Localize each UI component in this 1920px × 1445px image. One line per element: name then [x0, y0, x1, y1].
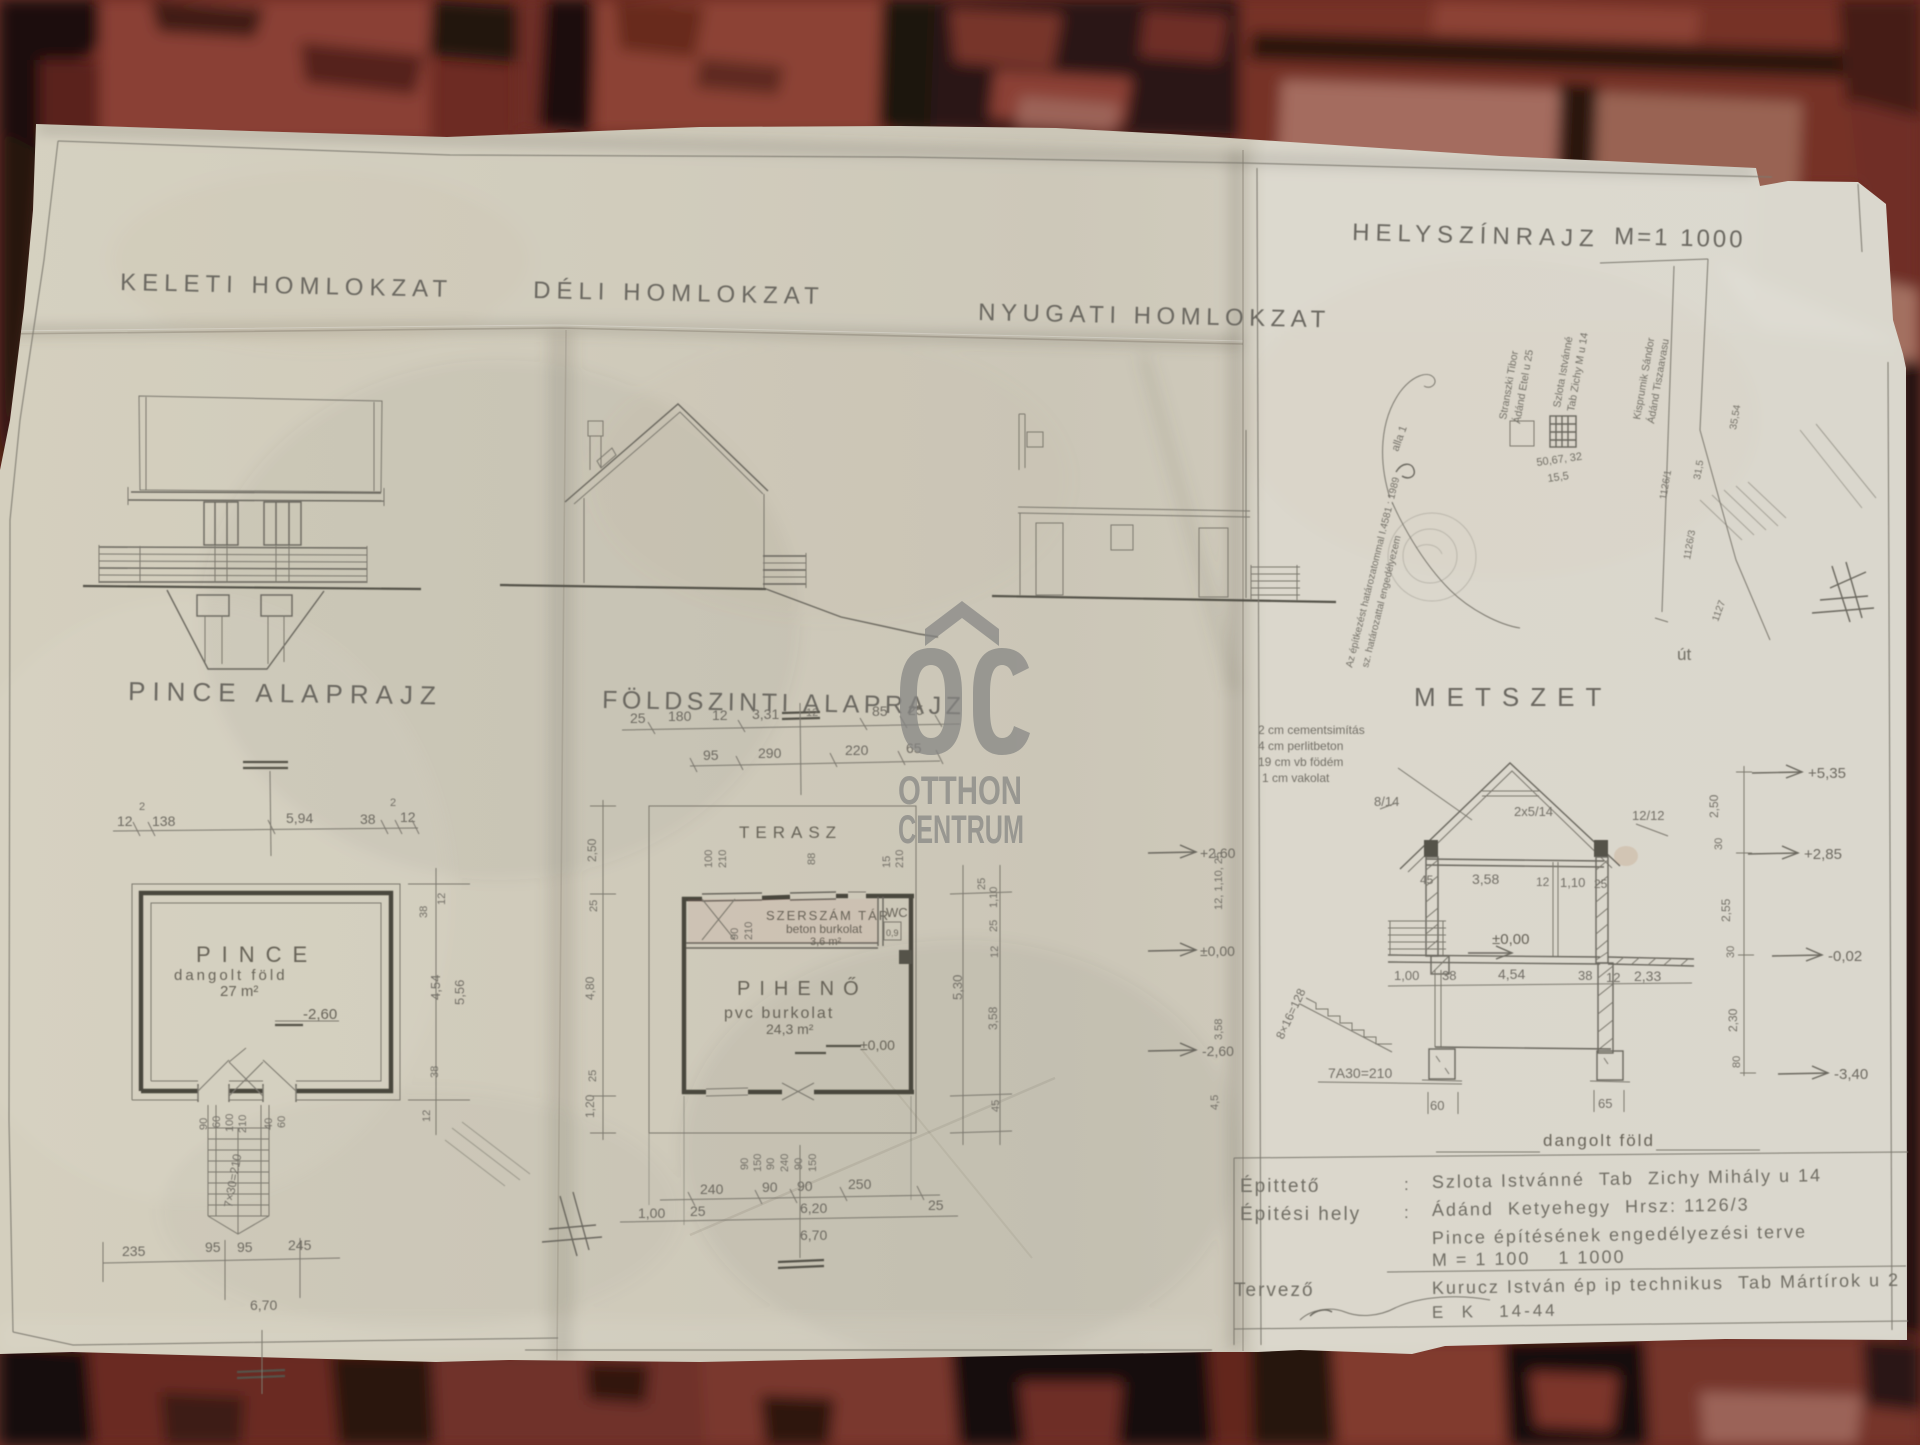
svg-text:+2,85: +2,85 — [1804, 846, 1842, 863]
svg-text:2,30: 2,30 — [1726, 1008, 1740, 1032]
svg-text:12: 12 — [989, 946, 1001, 958]
svg-text:4 cm perlitbeton: 4 cm perlitbeton — [1258, 739, 1343, 753]
svg-text:38: 38 — [429, 1066, 441, 1078]
svg-text:25: 25 — [690, 1203, 706, 1219]
svg-text:95: 95 — [205, 1239, 221, 1255]
svg-text:150: 150 — [807, 1154, 819, 1172]
svg-text:2: 2 — [139, 801, 145, 813]
svg-text:25: 25 — [588, 900, 600, 912]
svg-text:240: 240 — [779, 1154, 791, 1172]
svg-text:+5,35: +5,35 — [1808, 765, 1846, 782]
svg-text:OTTHON: OTTHON — [898, 769, 1022, 813]
svg-text:12: 12 — [1536, 875, 1550, 889]
svg-text:25: 25 — [988, 920, 1000, 932]
svg-text:25: 25 — [1594, 877, 1608, 891]
svg-text:60: 60 — [276, 1116, 288, 1128]
svg-text:5,30: 5,30 — [950, 975, 965, 1000]
svg-text:4,54: 4,54 — [428, 975, 443, 1000]
svg-text:12: 12 — [712, 707, 728, 723]
svg-text:19 cm vb födém: 19 cm vb födém — [1258, 755, 1343, 769]
svg-text:2x5/14: 2x5/14 — [1514, 804, 1553, 819]
svg-text:1,00: 1,00 — [638, 1205, 665, 1221]
svg-text:12/12: 12/12 — [1632, 808, 1665, 823]
svg-text:2,50: 2,50 — [1707, 794, 1721, 818]
svg-text:6,70: 6,70 — [250, 1297, 277, 1313]
svg-text:85: 85 — [872, 703, 888, 719]
svg-text:27 m²: 27 m² — [220, 983, 258, 1000]
svg-text:SZERSZÁM TÁR: SZERSZÁM TÁR — [766, 908, 890, 923]
svg-text:PINCE: PINCE — [196, 942, 318, 967]
svg-text:PIHENŐ: PIHENŐ — [737, 977, 868, 1000]
svg-text:2,50: 2,50 — [585, 838, 599, 862]
svg-text::: : — [1404, 1175, 1409, 1194]
svg-text:90: 90 — [729, 928, 741, 940]
svg-text:12: 12 — [806, 707, 818, 719]
svg-text:CENTRUM: CENTRUM — [898, 808, 1024, 852]
svg-text:38: 38 — [1442, 968, 1456, 983]
svg-text:180: 180 — [668, 708, 692, 724]
svg-text:80: 80 — [1731, 1056, 1743, 1068]
svg-text:METSZET: METSZET — [1414, 682, 1612, 712]
svg-text:210: 210 — [717, 850, 729, 868]
svg-text:6,70: 6,70 — [800, 1227, 827, 1243]
svg-text:E K 14-44: E K 14-44 — [1432, 1301, 1558, 1322]
svg-text:25: 25 — [928, 1197, 944, 1213]
svg-text:45: 45 — [1420, 873, 1434, 887]
svg-text:-3,40: -3,40 — [1834, 1066, 1868, 1083]
svg-text:25: 25 — [630, 710, 646, 726]
svg-text:210: 210 — [743, 922, 755, 940]
svg-text:24,3 m²: 24,3 m² — [766, 1021, 814, 1037]
svg-text:60: 60 — [211, 1116, 223, 1128]
svg-text:-2,60: -2,60 — [1202, 1043, 1234, 1059]
svg-text:40: 40 — [263, 1118, 275, 1130]
svg-text:7A30=210: 7A30=210 — [1328, 1065, 1392, 1081]
svg-text:2: 2 — [390, 797, 396, 809]
svg-text:Épitési hely: Épitési hely — [1240, 1204, 1361, 1225]
svg-text:95: 95 — [703, 747, 719, 763]
svg-text:220: 220 — [845, 742, 869, 758]
svg-text:Tervező: Tervező — [1234, 1280, 1315, 1301]
svg-text:90: 90 — [739, 1158, 751, 1170]
svg-text:M = 1 100 1 1000: M = 1 100 1 1000 — [1432, 1247, 1626, 1270]
svg-text::: : — [1404, 1203, 1409, 1222]
svg-text:±0,00: ±0,00 — [860, 1037, 895, 1053]
svg-text:240: 240 — [700, 1181, 724, 1197]
svg-text:dangolt föld: dangolt föld — [174, 967, 288, 984]
svg-text:4,54: 4,54 — [1498, 966, 1525, 982]
svg-text:5,56: 5,56 — [452, 980, 467, 1005]
svg-text:1,00: 1,00 — [1394, 968, 1419, 983]
svg-text:38: 38 — [418, 906, 430, 918]
svg-text:2,33: 2,33 — [1634, 968, 1661, 984]
svg-text:1 cm vakolat: 1 cm vakolat — [1262, 771, 1330, 785]
svg-text:90: 90 — [762, 1179, 778, 1195]
svg-text:5,94: 5,94 — [286, 810, 313, 826]
svg-text:290: 290 — [758, 745, 782, 761]
svg-text:90: 90 — [765, 1158, 777, 1170]
svg-text:25: 25 — [587, 1070, 599, 1082]
svg-text:90: 90 — [198, 1118, 210, 1130]
svg-text:1,10: 1,10 — [1560, 875, 1585, 890]
svg-text:30: 30 — [1713, 838, 1725, 850]
svg-text:TERASZ: TERASZ — [739, 823, 842, 842]
svg-text:3,58: 3,58 — [1213, 1019, 1225, 1040]
svg-text:pvc burkolat: pvc burkolat — [724, 1005, 834, 1022]
svg-text:210: 210 — [894, 850, 906, 868]
svg-text:65: 65 — [1598, 1096, 1612, 1111]
svg-text:88: 88 — [806, 853, 818, 865]
svg-text:30: 30 — [1725, 946, 1737, 958]
svg-text:2 cm cementsimítás: 2 cm cementsimítás — [1258, 723, 1365, 737]
svg-text:12: 12 — [436, 893, 448, 905]
svg-text:150: 150 — [752, 1154, 764, 1172]
svg-text:90: 90 — [793, 1158, 805, 1170]
svg-text:3,31: 3,31 — [752, 706, 779, 722]
svg-text:1,10: 1,10 — [988, 887, 1000, 908]
svg-text:út: út — [1677, 645, 1691, 664]
svg-text:138: 138 — [152, 813, 176, 829]
svg-text:3,6 m²: 3,6 m² — [810, 936, 842, 948]
svg-text:±0,00: ±0,00 — [1492, 931, 1529, 948]
svg-text:25: 25 — [976, 878, 988, 890]
svg-text:245: 245 — [288, 1237, 312, 1253]
svg-text:1,20: 1,20 — [583, 1094, 597, 1118]
svg-text:210: 210 — [237, 1115, 249, 1133]
svg-text:45: 45 — [990, 1100, 1002, 1112]
svg-text:100: 100 — [224, 1114, 236, 1132]
svg-text:dangolt föld: dangolt föld — [1543, 1131, 1655, 1150]
svg-text:100: 100 — [703, 850, 715, 868]
svg-text:-0,02: -0,02 — [1828, 948, 1862, 965]
svg-text:12: 12 — [421, 1110, 433, 1122]
svg-text:4,5: 4,5 — [1209, 1095, 1221, 1110]
svg-text:4,80: 4,80 — [583, 976, 597, 1000]
svg-text:beton burkolat: beton burkolat — [786, 922, 863, 936]
svg-text:12: 12 — [117, 813, 133, 829]
svg-text:12, 1,10, 25: 12, 1,10, 25 — [1213, 852, 1225, 910]
svg-text:235: 235 — [122, 1243, 146, 1259]
svg-text:M=1 1000: M=1 1000 — [1614, 223, 1746, 253]
svg-text:95: 95 — [237, 1239, 253, 1255]
svg-text:60: 60 — [1430, 1098, 1444, 1113]
svg-text:250: 250 — [848, 1176, 872, 1192]
svg-text:90: 90 — [797, 1178, 813, 1194]
svg-text:Épittető: Épittető — [1240, 1176, 1320, 1197]
svg-text:6,20: 6,20 — [800, 1200, 827, 1216]
svg-text:0,9: 0,9 — [886, 928, 899, 938]
svg-text:38: 38 — [360, 811, 376, 827]
svg-text:-2,60: -2,60 — [303, 1006, 337, 1023]
svg-text:3,58: 3,58 — [986, 1006, 1000, 1030]
svg-text:WC: WC — [886, 905, 908, 920]
svg-text:PINCE ALAPRAJZ: PINCE ALAPRAJZ — [128, 676, 443, 710]
svg-text:2,55: 2,55 — [1719, 898, 1733, 922]
svg-text:15: 15 — [881, 856, 893, 868]
svg-text:38: 38 — [1578, 968, 1592, 983]
svg-text:±0,00: ±0,00 — [1200, 943, 1235, 959]
svg-text:3,58: 3,58 — [1472, 871, 1499, 887]
